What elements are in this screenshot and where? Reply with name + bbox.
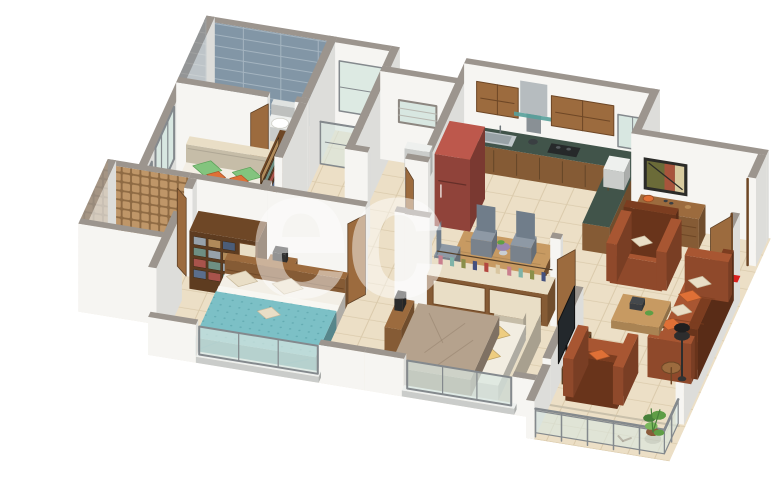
floor-plan-render: ec bbox=[0, 0, 780, 490]
apartment-3d-scene bbox=[0, 0, 780, 490]
vent-window bbox=[399, 100, 437, 128]
